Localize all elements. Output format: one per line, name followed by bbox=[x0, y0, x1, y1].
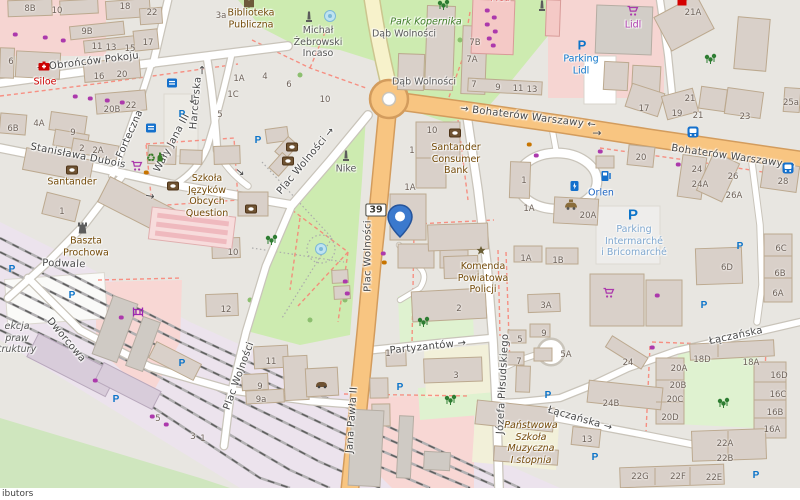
bank-icon bbox=[245, 205, 257, 214]
shop-dot bbox=[164, 422, 169, 427]
poi-label: Nike bbox=[336, 163, 357, 175]
street-label: Plac Wolności bbox=[363, 220, 374, 292]
house-number: 5 bbox=[217, 110, 222, 120]
route-shield-39: 39 bbox=[365, 204, 386, 217]
poi-label: Szkoła Języków Obcych Question bbox=[186, 173, 229, 219]
house-number: 1C bbox=[227, 90, 238, 100]
house-number: 20 bbox=[636, 153, 647, 163]
taxi-icon bbox=[564, 200, 578, 211]
house-number: 2 bbox=[456, 304, 461, 314]
shop-dot bbox=[93, 378, 98, 383]
house-number: 3a bbox=[216, 11, 227, 21]
poi-label: Park Kopernika bbox=[390, 16, 461, 28]
house-number: 6A bbox=[772, 289, 783, 299]
house-number: 25a bbox=[783, 98, 799, 108]
street-label: Dworcowa bbox=[44, 316, 87, 365]
house-number: 20B bbox=[104, 105, 121, 115]
castle-icon bbox=[76, 222, 88, 235]
poi-label: Komenda Powiatowa Policji bbox=[458, 261, 509, 296]
location-marker-pin bbox=[387, 204, 413, 238]
shop-dot bbox=[650, 345, 655, 350]
bank-icon bbox=[167, 182, 179, 191]
tree-icon bbox=[416, 316, 432, 328]
street-label: Podwale bbox=[42, 258, 86, 271]
house-number: 1 bbox=[385, 349, 390, 359]
house-number: 24 bbox=[692, 165, 703, 175]
house-number: 18D bbox=[693, 355, 710, 365]
shop-dot bbox=[491, 43, 496, 48]
shelter-icon bbox=[167, 78, 178, 88]
house-number: 18 bbox=[120, 2, 131, 12]
food-dot bbox=[144, 170, 149, 175]
house-number: 22G bbox=[631, 472, 648, 482]
shop-dot bbox=[43, 35, 48, 40]
street-label: → Obrońców Pokoju bbox=[36, 50, 139, 73]
parking-icon: P bbox=[69, 291, 76, 301]
red-poi-icon bbox=[678, 0, 687, 6]
house-number: 22E bbox=[706, 473, 722, 483]
street-label: → Bohaterów Warszawy ← bbox=[459, 103, 596, 131]
street-label: Forteczna bbox=[114, 108, 145, 160]
house-number: 19 bbox=[672, 109, 683, 119]
shop-dot bbox=[381, 251, 386, 256]
house-number: 5A bbox=[560, 350, 571, 360]
house-number: 7 bbox=[471, 80, 476, 90]
tree-icon bbox=[716, 397, 732, 409]
house-number: 6 bbox=[286, 80, 291, 90]
house-number: 1A bbox=[520, 254, 531, 264]
house-number: 16C bbox=[770, 390, 787, 400]
cart-icon bbox=[627, 6, 640, 17]
house-number: 20D bbox=[661, 413, 678, 423]
house-number: 28 bbox=[778, 177, 789, 187]
house-number: 21A bbox=[685, 8, 702, 18]
house-number: 11 bbox=[513, 84, 524, 94]
poi-label: Santander bbox=[47, 176, 96, 188]
bus-icon bbox=[687, 126, 699, 138]
shop-dot bbox=[676, 162, 681, 167]
shop-dot bbox=[73, 94, 78, 99]
house-number: 3A bbox=[540, 301, 551, 311]
parking-icon: P bbox=[592, 453, 599, 463]
bank-icon bbox=[282, 157, 294, 166]
parking-icon: P bbox=[701, 301, 708, 311]
monument-icon bbox=[305, 11, 313, 24]
house-number: 15 bbox=[125, 44, 136, 54]
cart-icon bbox=[131, 161, 144, 172]
house-number: 26 bbox=[728, 172, 739, 182]
library-icon bbox=[243, 0, 255, 9]
route-shield-number: 39 bbox=[369, 205, 382, 216]
poi-label: Orlen bbox=[588, 187, 614, 199]
street-label: Łączańska → bbox=[546, 405, 613, 434]
house-number: 8B bbox=[24, 4, 35, 14]
house-number: 2A bbox=[92, 146, 103, 156]
house-number: 24 bbox=[623, 358, 634, 368]
house-number: 9a bbox=[256, 395, 267, 405]
shop-dot bbox=[655, 293, 660, 298]
shop-dot bbox=[13, 32, 18, 37]
street-label: Łączańska bbox=[708, 325, 764, 347]
poi-label: Med bbox=[490, 0, 510, 4]
house-number: 24A bbox=[692, 180, 709, 190]
poi-label: Lidl bbox=[625, 19, 642, 31]
house-number: 3 bbox=[453, 371, 458, 381]
carshop-icon bbox=[315, 379, 329, 389]
shop-dot bbox=[119, 315, 124, 320]
house-number: 20 bbox=[117, 70, 128, 80]
house-number: 22B bbox=[717, 454, 734, 464]
arrow-icon: → bbox=[145, 191, 154, 202]
house-number: 17 bbox=[639, 104, 650, 114]
poi-label: Michał Żebrowski Incaso bbox=[294, 25, 343, 60]
house-number: 4A bbox=[33, 119, 44, 129]
house-number: 16 bbox=[94, 72, 105, 82]
poi-label: Dąb Wolności bbox=[372, 28, 436, 40]
house-number: 1B bbox=[552, 256, 563, 266]
house-number: 6D bbox=[721, 263, 733, 273]
parking-icon: P bbox=[179, 359, 186, 369]
food-dot bbox=[382, 260, 387, 265]
house-number: 1 bbox=[409, 146, 414, 156]
shop-dot bbox=[487, 36, 492, 41]
monument-icon bbox=[538, 0, 546, 13]
poi-label: ekcja praw truktury bbox=[0, 321, 36, 356]
house-number: 21 bbox=[693, 111, 704, 121]
cart-icon bbox=[603, 288, 616, 299]
house-number: 13 bbox=[582, 435, 593, 445]
poi-label: Parking Lidl bbox=[563, 54, 598, 77]
house-number: 9B bbox=[81, 27, 92, 37]
house-number: 12 bbox=[221, 305, 232, 315]
house-number: 4 bbox=[262, 72, 267, 82]
fuel-icon bbox=[601, 170, 612, 182]
house-number: 26A bbox=[726, 191, 743, 201]
house-number: 6B bbox=[774, 269, 785, 279]
tree-icon bbox=[703, 53, 719, 65]
arrow-icon: → bbox=[197, 65, 206, 76]
house-number: 16B bbox=[767, 408, 784, 418]
tree-icon bbox=[264, 234, 280, 246]
house-number: 17 bbox=[143, 38, 154, 48]
poi-label: Baszta Prochowa bbox=[63, 236, 109, 259]
house-number: 7B bbox=[469, 38, 480, 48]
parking-icon: P bbox=[737, 242, 744, 252]
shop-dot bbox=[120, 100, 125, 105]
house-number: 11 bbox=[92, 42, 103, 52]
police-icon bbox=[475, 245, 487, 257]
parking-icon: P bbox=[545, 391, 552, 401]
location-marker[interactable] bbox=[387, 204, 413, 238]
house-number: 24B bbox=[603, 399, 620, 409]
house-number: 3 bbox=[190, 432, 195, 442]
parking-icon: P bbox=[113, 395, 120, 405]
tree-icon bbox=[443, 394, 459, 406]
poi-label: Państwowa Szkoła Muzyczna I stopnia bbox=[504, 420, 557, 466]
house-number: 7A bbox=[466, 55, 477, 65]
house-number: 22 bbox=[147, 8, 158, 18]
charging-icon bbox=[570, 180, 580, 192]
house-number: 20C bbox=[667, 395, 684, 405]
shop-dot bbox=[485, 22, 490, 27]
map-labels-layer: → Obrońców PokojuHarcerskaFortecznaWały … bbox=[0, 0, 800, 488]
house-number: 10 bbox=[52, 6, 63, 16]
monument-icon bbox=[342, 150, 350, 163]
house-number: 9 bbox=[495, 83, 500, 93]
attribution-text: ibutors bbox=[2, 489, 33, 499]
house-number: 6C bbox=[775, 244, 786, 254]
map-view[interactable]: → Obrońców PokojuHarcerskaFortecznaWały … bbox=[0, 0, 800, 500]
fountain-icon bbox=[315, 243, 328, 256]
house-number: 16A bbox=[764, 425, 781, 435]
house-number: 11 bbox=[266, 357, 277, 367]
shop-dot bbox=[598, 149, 603, 154]
house-number: 22A bbox=[717, 439, 734, 449]
house-number: 6 bbox=[8, 57, 13, 67]
house-number: 22 bbox=[126, 101, 137, 111]
house-number: 2 bbox=[79, 144, 84, 154]
house-number: 7 bbox=[516, 357, 521, 367]
street-label: Partyzantów → bbox=[389, 338, 467, 357]
fountain-icon bbox=[324, 10, 337, 23]
shop-dot bbox=[61, 38, 66, 43]
house-number: 9 bbox=[257, 382, 262, 392]
poi-label: Dąb Wolności bbox=[392, 76, 456, 88]
shop-dot bbox=[343, 279, 348, 284]
shop-dot bbox=[485, 8, 490, 13]
shop-dot bbox=[493, 29, 498, 34]
tree-icon bbox=[436, 0, 452, 11]
house-number: 5 bbox=[517, 335, 522, 345]
poi-label: Siloe bbox=[34, 76, 57, 88]
street-label: Wały Jana III bbox=[152, 112, 192, 174]
arrow-icon: → bbox=[187, 94, 196, 105]
shop-dot bbox=[492, 15, 497, 20]
house-number: 9 bbox=[541, 329, 546, 339]
street-label: Józefa Piłsudskiego bbox=[495, 333, 511, 434]
house-number: 18A bbox=[743, 358, 760, 368]
house-number: 10 bbox=[320, 95, 331, 105]
house-number: 16D bbox=[770, 371, 787, 381]
bottle-icon bbox=[157, 152, 163, 163]
parking-icon: P bbox=[255, 136, 262, 146]
parking-icon: P bbox=[179, 110, 186, 120]
attribution-bar: ibutors bbox=[0, 488, 800, 500]
parking-icon: P bbox=[9, 265, 16, 275]
arrow-icon: → bbox=[592, 128, 601, 139]
poi-label: Santander Consumer Bank bbox=[431, 142, 480, 177]
street-label: Harcerska bbox=[188, 76, 204, 130]
food-dot bbox=[527, 142, 532, 147]
shop-dot bbox=[534, 153, 539, 158]
street-label: Plac Wolności → bbox=[275, 125, 337, 196]
street-label: Stanisława Dubois bbox=[29, 141, 126, 170]
house-number: 13 bbox=[106, 43, 117, 53]
poi-label: Parking Intermarché i Bricomarché bbox=[601, 224, 667, 259]
arrow-icon: → bbox=[235, 167, 244, 178]
house-number: 20A bbox=[580, 211, 597, 221]
parking-icon: P bbox=[397, 383, 404, 393]
parking-icon: P bbox=[578, 39, 587, 52]
house-number: 6B bbox=[7, 124, 18, 134]
house-number: 13 bbox=[527, 85, 538, 95]
house-number: 9 bbox=[70, 128, 75, 138]
house-number: 1A bbox=[404, 183, 415, 193]
house-number: 22F bbox=[670, 472, 686, 482]
bank-icon bbox=[66, 166, 78, 175]
shelter-icon bbox=[146, 123, 157, 133]
house-number: 1 bbox=[200, 434, 205, 444]
bank-icon bbox=[449, 129, 461, 138]
parking-icon: P bbox=[628, 208, 638, 223]
shop-dot bbox=[88, 96, 93, 101]
street-label: Plac Wolności bbox=[222, 340, 257, 411]
parking-icon: P bbox=[753, 471, 760, 481]
house-number: 20B bbox=[670, 381, 687, 391]
bus-icon bbox=[782, 162, 794, 174]
gate-icon bbox=[132, 307, 145, 318]
house-number: 1 bbox=[59, 207, 64, 217]
house-number: 10 bbox=[228, 248, 239, 258]
pharmacy-icon bbox=[38, 61, 50, 71]
shop-dot bbox=[150, 414, 155, 419]
street-label: Jana Pawła II bbox=[344, 386, 360, 453]
shop-dot bbox=[105, 98, 110, 103]
poi-label: Biblioteka Publiczna bbox=[227, 8, 274, 31]
house-number: 23 bbox=[740, 112, 751, 122]
house-number: 1 bbox=[521, 176, 526, 186]
house-number: 1A bbox=[523, 204, 534, 214]
house-number: 5 bbox=[155, 414, 160, 424]
house-number: 1A bbox=[233, 74, 244, 84]
bank-icon bbox=[286, 143, 298, 152]
house-number: 21 bbox=[685, 94, 696, 104]
shop-dot bbox=[345, 291, 350, 296]
street-label: Bohaterów Warszawy → bbox=[671, 143, 796, 171]
house-number: 10 bbox=[427, 126, 438, 136]
house-number: 20A bbox=[671, 364, 688, 374]
recycle-icon: ♻ bbox=[146, 153, 156, 164]
